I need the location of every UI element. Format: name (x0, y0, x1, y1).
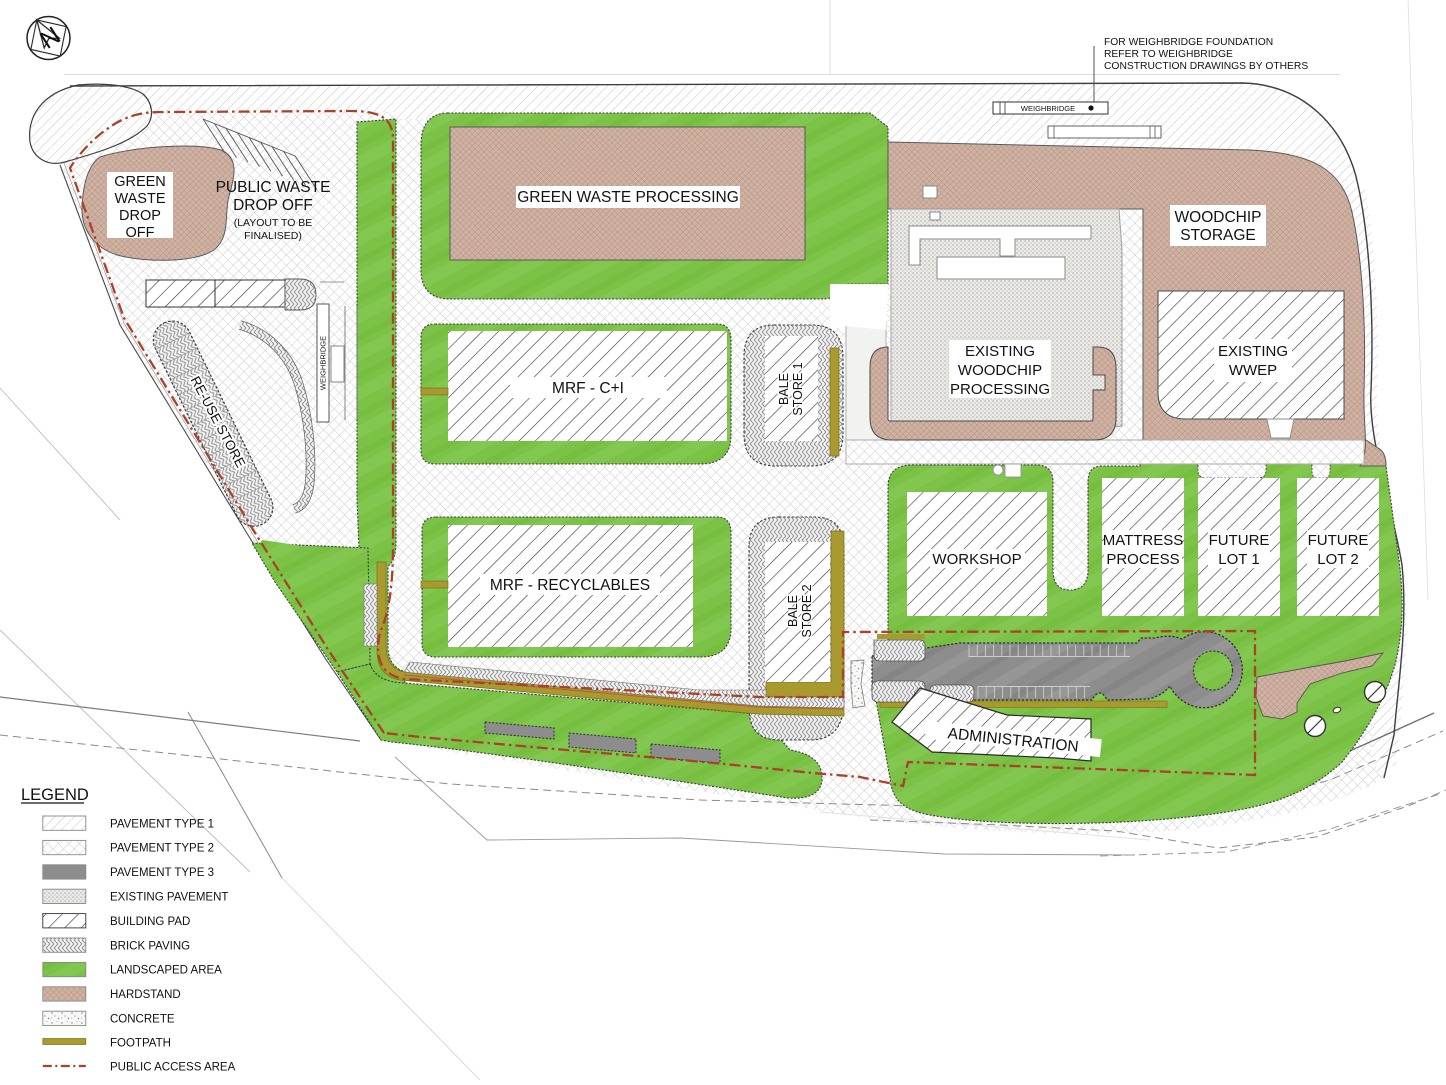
svg-text:LOT 1: LOT 1 (1218, 551, 1259, 568)
svg-text:WORKSHOP: WORKSHOP (932, 551, 1021, 568)
svg-text:BRICK PAVING: BRICK PAVING (110, 940, 190, 952)
svg-text:STORE 1: STORE 1 (791, 362, 805, 415)
svg-text:PUBLIC ACCESS AREA: PUBLIC ACCESS AREA (110, 1061, 236, 1073)
svg-text:WOODCHIP: WOODCHIP (1175, 209, 1262, 226)
svg-text:GREEN WASTE PROCESSING: GREEN WASTE PROCESSING (517, 189, 739, 206)
svg-text:LEGEND: LEGEND (21, 786, 89, 804)
svg-text:BUILDING PAD: BUILDING PAD (110, 916, 190, 928)
svg-text:FINALISED): FINALISED) (244, 230, 302, 242)
svg-text:GREEN: GREEN (114, 174, 166, 190)
svg-text:EXISTING: EXISTING (1218, 343, 1288, 360)
svg-text:WEIGHBRIDGE: WEIGHBRIDGE (1021, 104, 1075, 113)
svg-text:HARDSTAND: HARDSTAND (110, 989, 181, 1001)
svg-text:MRF - RECYCLABLES: MRF - RECYCLABLES (490, 577, 650, 594)
svg-text:EXISTING: EXISTING (965, 343, 1035, 360)
svg-text:LOT 2: LOT 2 (1317, 551, 1358, 568)
svg-text:PROCESS: PROCESS (1106, 551, 1179, 568)
svg-text:DROP OFF: DROP OFF (233, 197, 313, 214)
svg-text:PROCESSING: PROCESSING (950, 381, 1050, 398)
svg-text:PAVEMENT TYPE 1: PAVEMENT TYPE 1 (110, 818, 214, 830)
svg-text:PUBLIC WASTE: PUBLIC WASTE (216, 179, 331, 196)
svg-text:(LAYOUT TO BE: (LAYOUT TO BE (234, 217, 313, 229)
svg-text:FOR WEIGHBRIDGE FOUNDATION: FOR WEIGHBRIDGE FOUNDATION (1104, 37, 1273, 48)
svg-text:FOOTPATH: FOOTPATH (110, 1037, 171, 1049)
svg-text:MRF - C+I: MRF - C+I (552, 380, 624, 397)
svg-text:WASTE: WASTE (114, 191, 165, 207)
svg-text:BALE: BALE (786, 595, 800, 627)
svg-text:CONSTRUCTION DRAWINGS BY OTHER: CONSTRUCTION DRAWINGS BY OTHERS (1104, 61, 1308, 72)
svg-text:STORE 2: STORE 2 (800, 584, 814, 637)
svg-text:FUTURE: FUTURE (1209, 532, 1270, 549)
svg-text:STORAGE: STORAGE (1180, 227, 1256, 244)
svg-text:EXISTING PAVEMENT: EXISTING PAVEMENT (110, 892, 228, 904)
svg-text:WWEP: WWEP (1229, 362, 1277, 379)
svg-text:PAVEMENT TYPE 3: PAVEMENT TYPE 3 (110, 867, 214, 879)
svg-text:LANDSCAPED AREA: LANDSCAPED AREA (110, 965, 222, 977)
svg-text:WOODCHIP: WOODCHIP (958, 362, 1042, 379)
svg-text:WEIGHBRIDGE: WEIGHBRIDGE (319, 336, 328, 390)
svg-text:MATTRESS: MATTRESS (1103, 532, 1184, 549)
svg-text:CONCRETE: CONCRETE (110, 1014, 175, 1026)
svg-text:BALE: BALE (777, 373, 791, 405)
svg-text:PAVEMENT TYPE 2: PAVEMENT TYPE 2 (110, 843, 214, 855)
svg-text:FUTURE: FUTURE (1308, 532, 1369, 549)
svg-text:DROP: DROP (119, 208, 161, 224)
svg-text:REFER TO WEIGHBRIDGE: REFER TO WEIGHBRIDGE (1104, 49, 1233, 60)
svg-text:OFF: OFF (126, 225, 155, 241)
